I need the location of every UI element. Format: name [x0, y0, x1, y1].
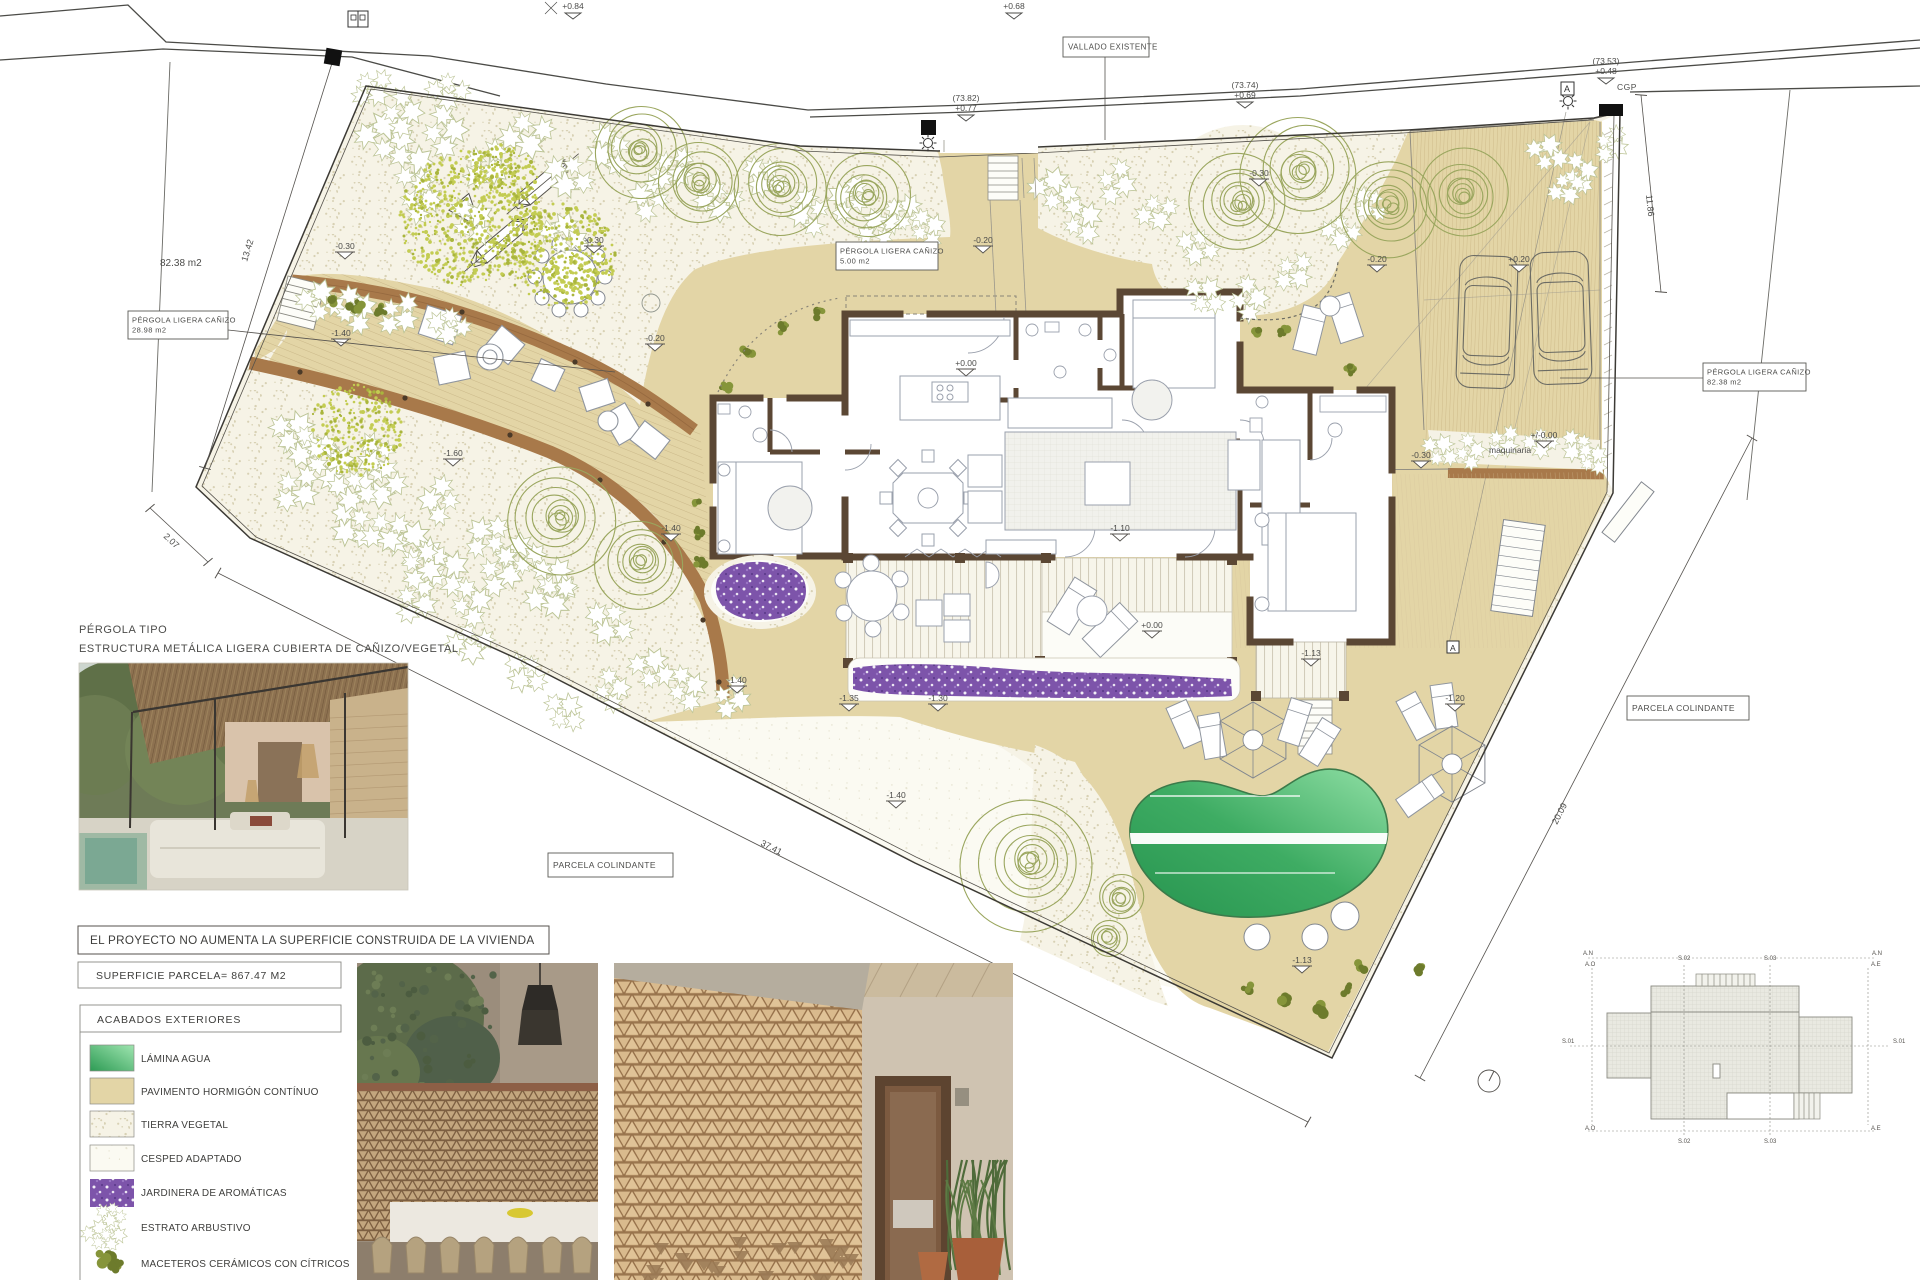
svg-text:(73.74): (73.74) — [1232, 80, 1259, 90]
svg-text:MACETEROS CERÁMICOS CON CÍTRIC: MACETEROS CERÁMICOS CON CÍTRICOS — [141, 1257, 350, 1270]
svg-text:-1.60: -1.60 — [443, 448, 463, 458]
svg-text:EL PROYECTO NO AUMENTA LA SUPE: EL PROYECTO NO AUMENTA LA SUPERFICIE CON… — [90, 934, 534, 947]
svg-text:-0.20: -0.20 — [973, 235, 993, 245]
svg-text:+0.20: +0.20 — [1508, 254, 1530, 264]
svg-text:TIERRA VEGETAL: TIERRA VEGETAL — [141, 1120, 228, 1131]
svg-text:-1.10: -1.10 — [1110, 523, 1130, 533]
svg-text:A: A — [1564, 84, 1570, 94]
svg-text:VALLADO EXISTENTE: VALLADO EXISTENTE — [1068, 43, 1158, 52]
svg-text:-0.30: -0.30 — [335, 241, 355, 251]
svg-text:-1.40: -1.40 — [331, 328, 351, 338]
svg-text:(73.53): (73.53) — [1593, 56, 1620, 66]
svg-text:82.38 m2: 82.38 m2 — [160, 258, 202, 269]
svg-text:-1.40: -1.40 — [727, 675, 747, 685]
svg-text:-0.20: -0.20 — [1367, 254, 1387, 264]
svg-text:-1.20: -1.20 — [1445, 693, 1465, 703]
svg-text:JARDINERA DE AROMÁTICAS: JARDINERA DE AROMÁTICAS — [141, 1186, 287, 1199]
svg-text:A.E: A.E — [1871, 962, 1881, 968]
svg-text:A.E: A.E — [1871, 1126, 1881, 1132]
svg-text:PÉRGOLA LIGERA CAÑIZO: PÉRGOLA LIGERA CAÑIZO — [1707, 368, 1811, 377]
svg-text:A: A — [1450, 643, 1456, 653]
svg-text:PÉRGOLA LIGERA CAÑIZO: PÉRGOLA LIGERA CAÑIZO — [840, 247, 944, 256]
svg-text:-1.40: -1.40 — [886, 790, 906, 800]
svg-text:+0.69: +0.69 — [1234, 90, 1256, 100]
svg-text:-1.30: -1.30 — [928, 693, 948, 703]
svg-text:+/-0.00: +/-0.00 — [1531, 430, 1558, 440]
svg-text:11.86: 11.86 — [1644, 194, 1656, 217]
svg-text:maquinaria: maquinaria — [1489, 445, 1531, 455]
svg-text:PARCELA COLINDANTE: PARCELA COLINDANTE — [553, 860, 656, 870]
svg-text:A.O: A.O — [1585, 962, 1596, 968]
svg-text:+0.84: +0.84 — [562, 1, 584, 11]
svg-text:PARCELA COLINDANTE: PARCELA COLINDANTE — [1632, 703, 1735, 713]
svg-text:ESTRUCTURA METÁLICA LIGERA CUB: ESTRUCTURA METÁLICA LIGERA CUBIERTA DE C… — [79, 642, 459, 655]
svg-text:PÉRGOLA TIPO: PÉRGOLA TIPO — [79, 623, 167, 636]
svg-text:ESTRATO ARBUSTIVO: ESTRATO ARBUSTIVO — [141, 1223, 251, 1234]
svg-text:28.98 m2: 28.98 m2 — [132, 325, 166, 334]
svg-text:-1.40: -1.40 — [661, 523, 681, 533]
svg-text:CGP: CGP — [1617, 82, 1637, 92]
svg-text:S.02: S.02 — [1678, 1139, 1691, 1145]
svg-text:-1.13: -1.13 — [1292, 955, 1312, 965]
svg-text:SUPERFICIE PARCELA= 867.47 M2: SUPERFICIE PARCELA= 867.47 M2 — [96, 970, 286, 982]
svg-text:-0.30: -0.30 — [1411, 450, 1431, 460]
svg-text:+0.00: +0.00 — [1141, 620, 1163, 630]
svg-text:ACABADOS EXTERIORES: ACABADOS EXTERIORES — [97, 1014, 241, 1026]
svg-text:+0.68: +0.68 — [1003, 1, 1025, 11]
svg-text:S.02: S.02 — [1678, 956, 1691, 962]
svg-text:S.01: S.01 — [1562, 1039, 1575, 1045]
svg-text:+0.48: +0.48 — [1595, 66, 1617, 76]
svg-text:A.O: A.O — [1585, 1126, 1596, 1132]
svg-text:5.00 m2: 5.00 m2 — [840, 256, 870, 265]
svg-text:PAVIMENTO HORMIGÓN CONTÍNUO: PAVIMENTO HORMIGÓN CONTÍNUO — [141, 1085, 319, 1098]
svg-text:+0.00: +0.00 — [955, 358, 977, 368]
svg-text:13.42: 13.42 — [239, 238, 255, 262]
svg-text:-0.30: -0.30 — [584, 235, 604, 245]
svg-text:PÉRGOLA LIGERA CAÑIZO: PÉRGOLA LIGERA CAÑIZO — [132, 316, 236, 325]
svg-text:CESPED ADAPTADO: CESPED ADAPTADO — [141, 1154, 242, 1165]
svg-text:S.01: S.01 — [1893, 1039, 1906, 1045]
svg-text:(73.82): (73.82) — [953, 93, 980, 103]
svg-text:-0.20: -0.20 — [645, 333, 665, 343]
svg-text:82.38 m2: 82.38 m2 — [1707, 377, 1741, 386]
svg-text:-0.30: -0.30 — [1249, 168, 1269, 178]
svg-text:A.N: A.N — [1872, 951, 1882, 957]
svg-text:-1.13: -1.13 — [1301, 648, 1321, 658]
svg-text:LÁMINA AGUA: LÁMINA AGUA — [141, 1052, 211, 1065]
svg-text:+0.77: +0.77 — [955, 103, 977, 113]
svg-text:37.41: 37.41 — [759, 838, 784, 857]
svg-text:20.09: 20.09 — [1550, 801, 1569, 826]
svg-text:A.N: A.N — [1583, 951, 1593, 957]
svg-text:S.03: S.03 — [1764, 956, 1777, 962]
svg-text:-1.35: -1.35 — [839, 693, 859, 703]
svg-text:S.03: S.03 — [1764, 1139, 1777, 1145]
